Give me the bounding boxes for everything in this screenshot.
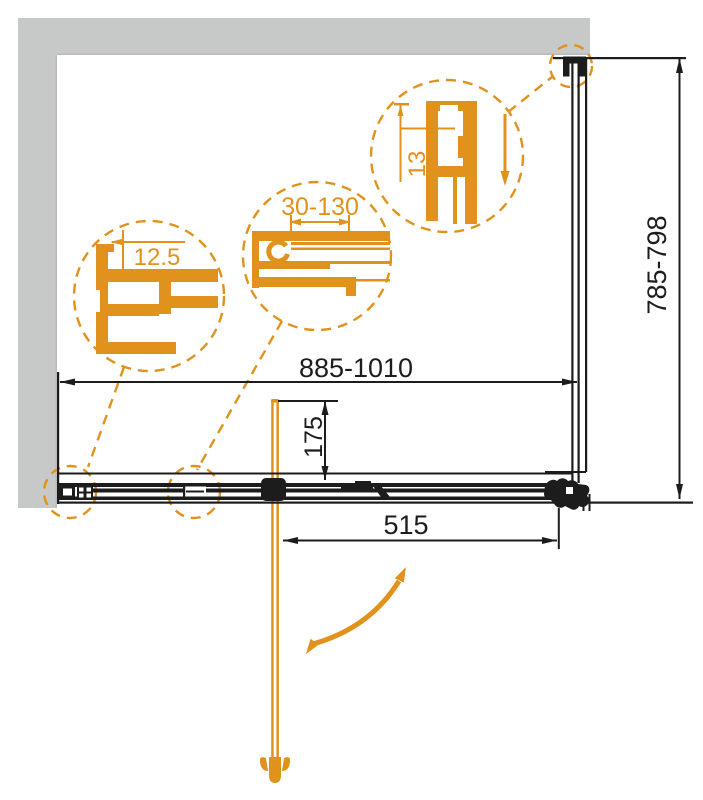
door-width-dimension: 515 [283,508,560,549]
wall-top [18,18,590,55]
door-handle-knob [260,757,290,783]
width-adjust-range-label: 30-130 [281,193,359,221]
door-pivot-block [261,478,286,501]
arrowhead-down-icon [501,171,510,186]
detail-wall-profile: 12.5 [96,230,218,354]
wall-profile-adjust-label: 12.5 [134,244,181,271]
arrowhead-up-icon [398,105,404,116]
side-depth-label: 785-798 [642,215,672,314]
tick-line [278,400,338,402]
rail-seam-detail [183,487,206,497]
arrowhead-down-icon [676,484,683,499]
door-width-label: 515 [383,510,428,540]
pivot-offset-label: 175 [300,416,328,458]
leader-line [508,77,552,112]
top-corner-wall-profile [563,57,586,77]
top-profile-section [426,101,477,224]
glass-edge-line [90,489,545,493]
roller-hook [269,242,288,261]
door-open-position-line [271,399,279,758]
dimension-drawing: 885-1010 785-798 175 515 [0,0,703,800]
floor-line [57,502,693,504]
detail-adjust-range: 30-130 [252,193,390,296]
extension-line [348,215,350,232]
bottom-rail [57,473,693,510]
slide-direction-arrow [501,114,510,186]
arrowhead-right-icon [562,379,577,386]
arrowhead-up-icon [676,58,683,73]
side-panel [545,58,591,511]
pivot-offset-dimension: 175 [278,400,338,480]
leader-line [197,321,282,470]
arrowhead-left-icon [283,537,298,544]
overall-width-label: 885-1010 [299,353,413,383]
arrowhead-right-icon [542,537,557,544]
detail-top-profile: 13 [394,101,510,224]
extension-line [57,372,59,504]
telescopic-profile-section [252,231,390,296]
arrowhead-up-right-icon [395,567,406,583]
side-depth-dimension: 785-798 [642,58,683,499]
rail-front-line [57,473,572,475]
extension-line [122,230,124,272]
arrowhead-up-icon [322,401,329,415]
door-swing-arrow [306,567,406,654]
extension-line [558,508,560,549]
arrowhead-left-icon [60,379,75,386]
rail-corner-connector [544,478,589,509]
extension-line [290,215,292,232]
wall-left [18,18,57,508]
